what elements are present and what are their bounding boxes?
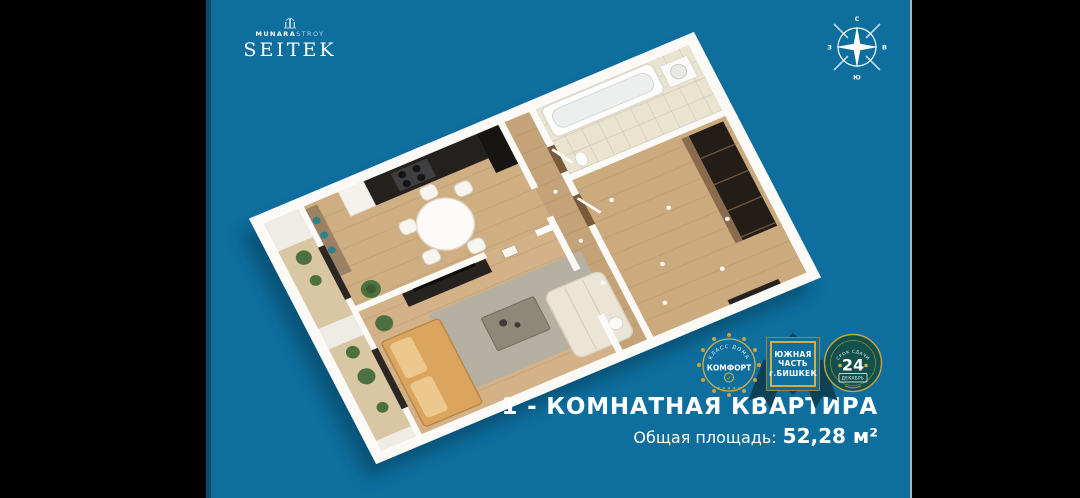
badge-class-label: КОМФОРТ (707, 364, 752, 373)
area-label: Общая площадь: (633, 428, 776, 447)
badge-class-stars: ★ ★ ★ ★ ★ (717, 386, 741, 391)
compass-north: С (855, 15, 860, 23)
logo-mark-icon (281, 12, 299, 29)
teal-canvas: MUNARASTROY SEITEK С В Ю З (206, 0, 912, 498)
badge-deadline-sub: ДЕКАБРЬ (842, 376, 865, 381)
logo-seitek: SEITEK (230, 39, 350, 61)
badge-deadline-value: 24 (842, 356, 864, 375)
badge-location-line3: г.БИШКЕК (769, 369, 817, 378)
compass-rose: С В Ю З (820, 10, 894, 84)
total-area: Общая площадь:52,28 м² (502, 424, 879, 448)
logo-munara: MUNARA (255, 30, 296, 38)
compass-east: В (882, 44, 887, 52)
flyer: MUNARASTROY SEITEK С В Ю З (0, 0, 1080, 498)
check-icon: ✓ (726, 375, 731, 382)
area-value: 52,28 м² (783, 424, 878, 448)
badge-location: ЮЖНАЯ ЧАСТЬ г.БИШКЕК (766, 337, 820, 391)
right-edge-line (910, 0, 912, 498)
badge-comfort-class: КЛАСС ДОМА КОМФОРТ ✓ ★ ★ ★ ★ ★ (695, 331, 763, 399)
badge-location-line1: ЮЖНАЯ (774, 350, 811, 359)
compass-south: Ю (853, 74, 861, 82)
compass-graphic (834, 24, 880, 70)
badge-deadline: СРОК СДАЧИ 24 ДЕКАБРЬ (821, 331, 885, 395)
logo: MUNARASTROY SEITEK (230, 12, 350, 61)
logo-stroy: STROY (296, 30, 324, 38)
footer: 1 - КОМНАТНАЯ КВАРТИРА Общая площадь:52,… (502, 394, 879, 448)
badge-location-frame: ЮЖНАЯ ЧАСТЬ г.БИШКЕК (770, 341, 816, 387)
logo-line1: MUNARASTROY (230, 30, 350, 38)
badge-location-line2: ЧАСТЬ (778, 359, 808, 368)
compass-west: З (827, 44, 832, 52)
